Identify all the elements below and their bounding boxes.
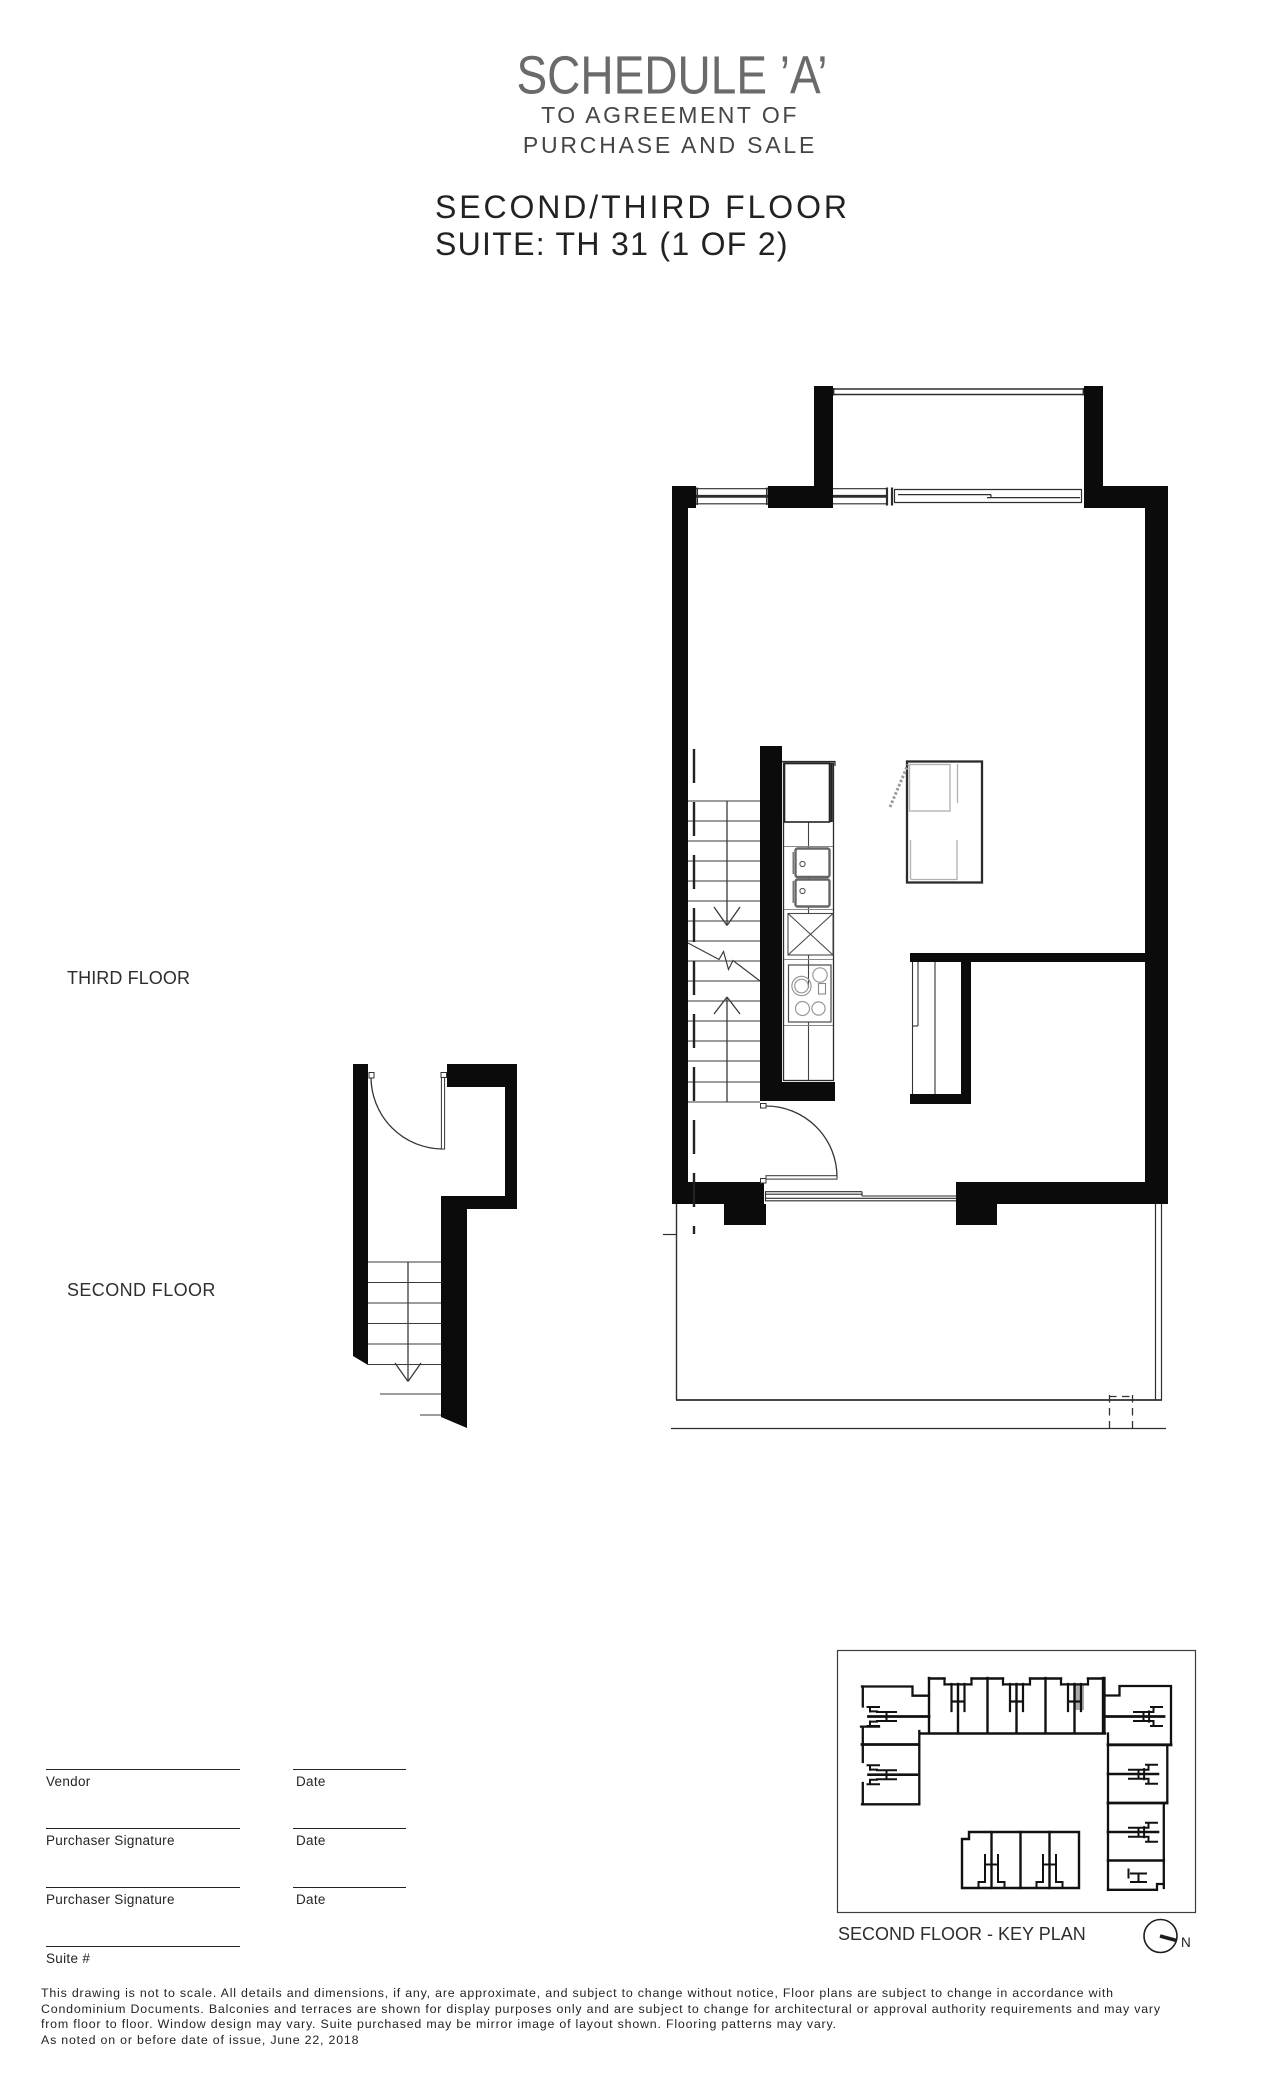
svg-text:N: N: [1181, 1935, 1191, 1950]
